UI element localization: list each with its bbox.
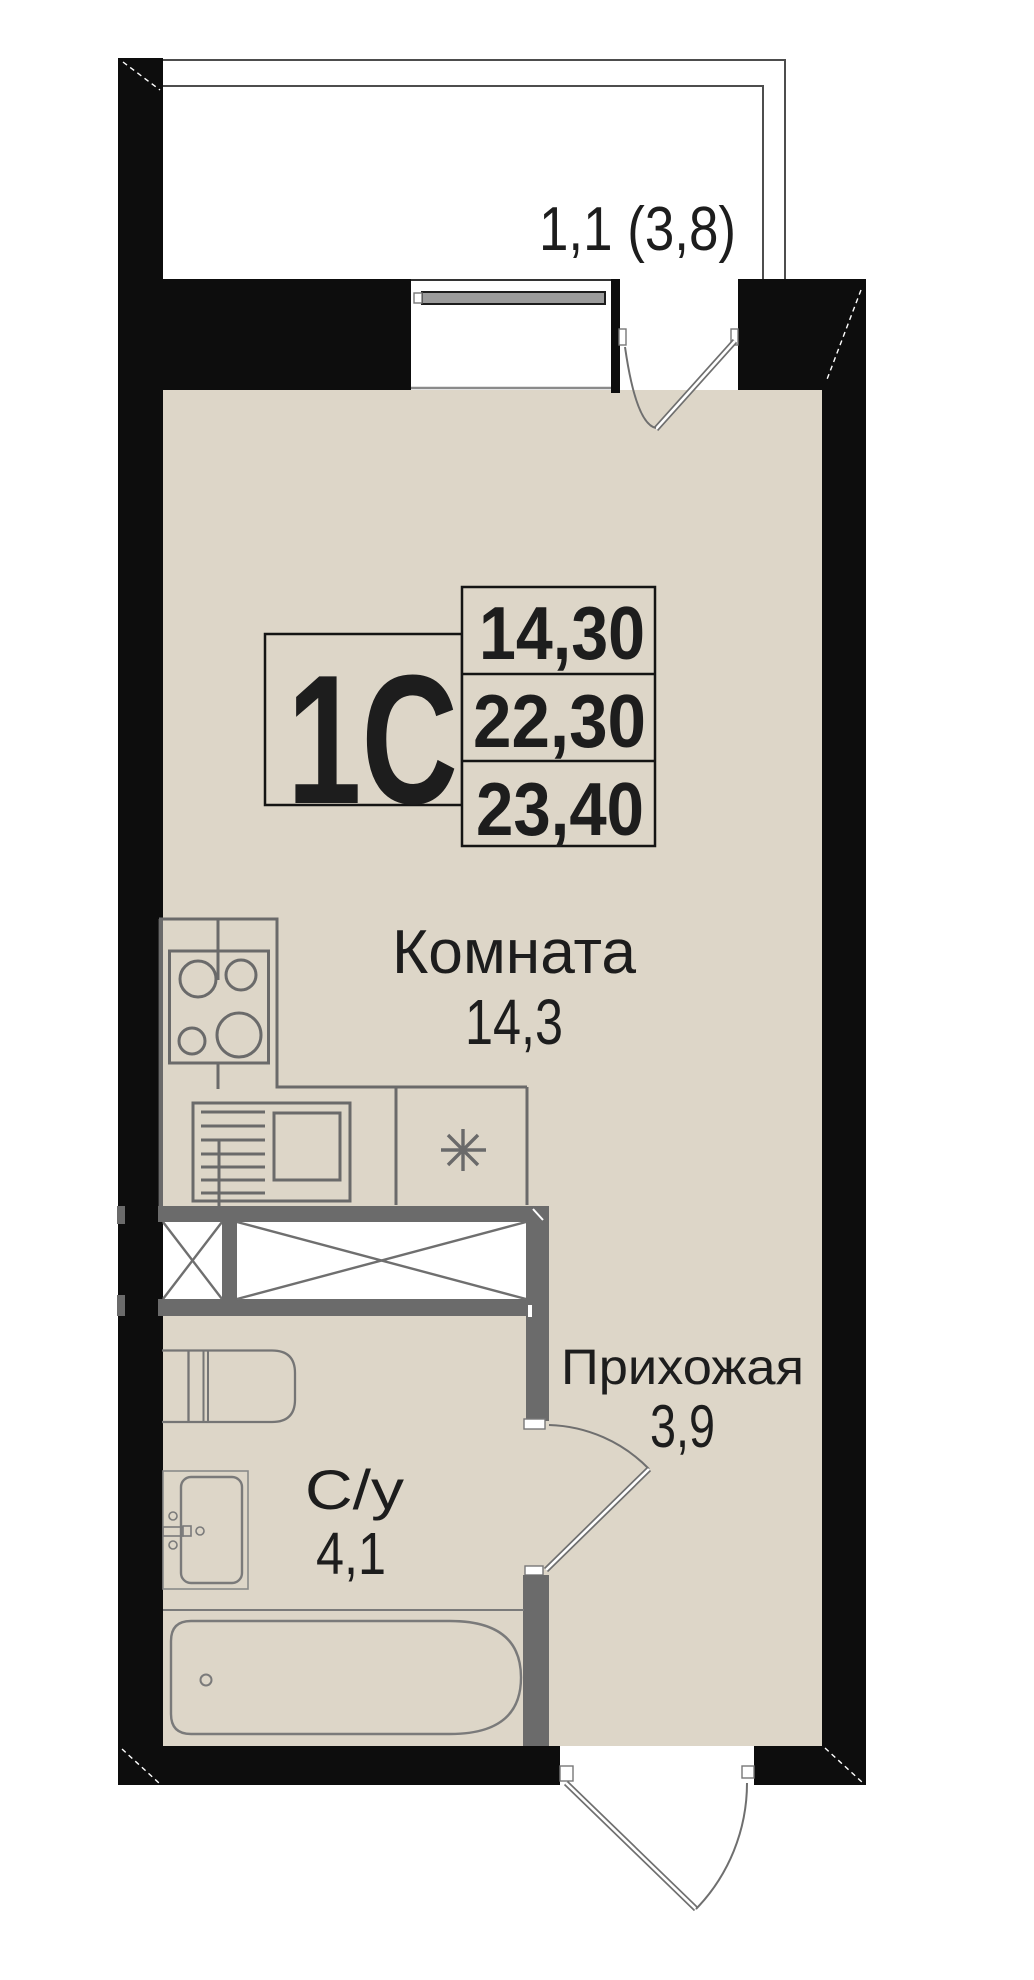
svg-text:Комната: Комната (392, 918, 637, 987)
svg-text:Прихожая: Прихожая (561, 1339, 804, 1395)
svg-text:22,30: 22,30 (473, 679, 646, 763)
svg-text:1,1 (3,8): 1,1 (3,8) (539, 195, 736, 264)
svg-text:14,3: 14,3 (465, 986, 563, 1058)
svg-text:4,1: 4,1 (316, 1521, 386, 1587)
svg-text:23,40: 23,40 (476, 767, 644, 851)
svg-text:14,30: 14,30 (479, 591, 645, 675)
svg-text:3,9: 3,9 (650, 1393, 715, 1460)
svg-text:С/у: С/у (305, 1458, 404, 1521)
svg-text:1С: 1С (287, 636, 458, 842)
